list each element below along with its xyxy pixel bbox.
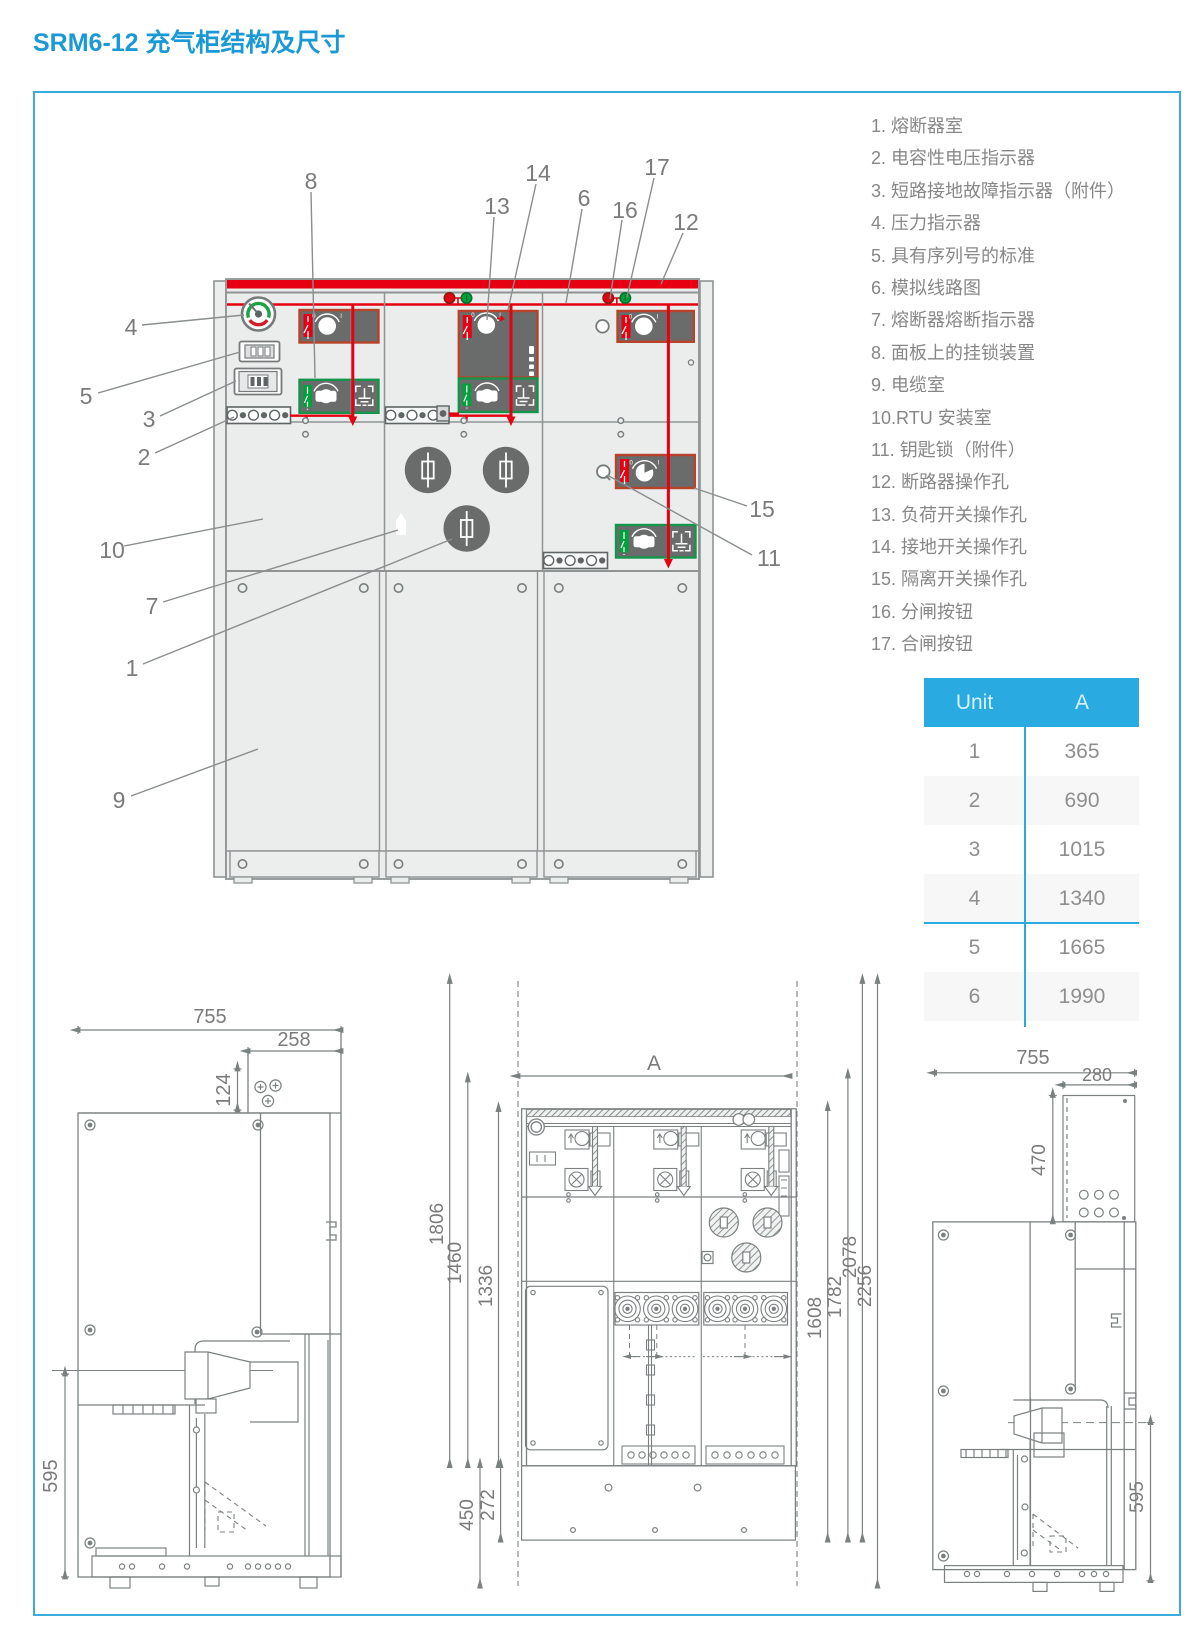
svg-text:2256: 2256 (855, 1265, 876, 1307)
svg-text:450: 450 (457, 1499, 478, 1531)
svg-text:14: 14 (525, 160, 551, 186)
svg-text:11: 11 (757, 545, 781, 571)
svg-text:12: 12 (673, 209, 699, 235)
svg-text:470: 470 (1029, 1144, 1050, 1176)
svg-text:15: 15 (749, 496, 775, 522)
svg-text:755: 755 (1016, 1047, 1049, 1069)
svg-text:1782: 1782 (825, 1276, 846, 1318)
svg-text:595: 595 (40, 1459, 62, 1492)
svg-text:9: 9 (113, 787, 126, 813)
svg-text:7: 7 (146, 593, 159, 619)
svg-text:3: 3 (143, 406, 156, 432)
svg-text:6: 6 (578, 185, 591, 211)
svg-text:595: 595 (1127, 1481, 1148, 1513)
svg-text:258: 258 (277, 1029, 310, 1051)
svg-text:755: 755 (193, 1006, 226, 1028)
svg-text:2: 2 (138, 444, 151, 470)
svg-text:1460: 1460 (445, 1242, 466, 1284)
svg-text:1: 1 (126, 655, 139, 681)
svg-text:A: A (647, 1052, 661, 1075)
svg-text:13: 13 (484, 193, 510, 219)
svg-text:17: 17 (644, 154, 670, 180)
svg-text:124: 124 (213, 1073, 235, 1106)
svg-text:1336: 1336 (476, 1265, 497, 1307)
svg-text:16: 16 (612, 197, 638, 223)
svg-text:8: 8 (305, 168, 318, 194)
svg-text:1608: 1608 (805, 1297, 826, 1339)
svg-text:280: 280 (1082, 1065, 1112, 1085)
svg-text:1806: 1806 (427, 1203, 448, 1245)
svg-text:5: 5 (80, 383, 93, 409)
svg-text:4: 4 (125, 314, 138, 340)
svg-text:272: 272 (478, 1489, 499, 1521)
svg-text:10: 10 (99, 537, 125, 563)
